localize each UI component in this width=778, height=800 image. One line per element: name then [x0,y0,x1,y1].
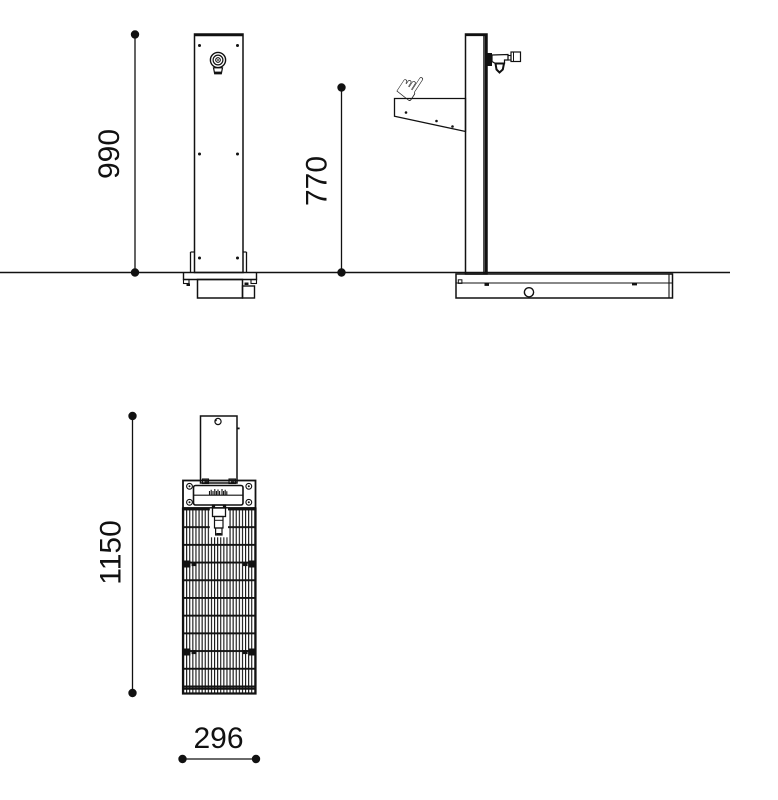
tap-knob-icon [210,52,225,74]
drain-hole [524,288,533,297]
dimension-770: 770 [301,83,346,276]
dimension-label-990: 990 [93,129,126,179]
dimension-label-1150: 1150 [95,520,128,585]
dimension-label-770: 770 [301,156,334,206]
push-tap-icon [487,52,521,73]
front-underground-small-box [243,286,255,298]
side-view: ☝ [389,34,673,298]
front-underground-box [198,280,243,299]
plan-view [183,416,256,694]
knurled-knob-texture [210,489,227,495]
front-underground-base [184,273,257,299]
front-post-outline [195,34,244,273]
plan-spout [210,505,228,537]
front-view [184,34,257,298]
dimension-990: 990 [93,30,139,276]
drawing-sheet: ☝ [0,0,778,800]
front-base-sleeve [191,252,247,273]
front-screw-dots [198,44,239,260]
side-underground-trough [456,274,673,298]
dimension-label-296: 296 [193,722,243,755]
plan-mounting-plate [183,481,256,509]
technical-drawing-canvas: ☝ [0,0,778,800]
dimension-296: 296 [178,722,260,763]
plan-post [201,416,240,484]
side-post-front-face [485,35,488,274]
dimension-1150: 1150 [95,412,137,697]
